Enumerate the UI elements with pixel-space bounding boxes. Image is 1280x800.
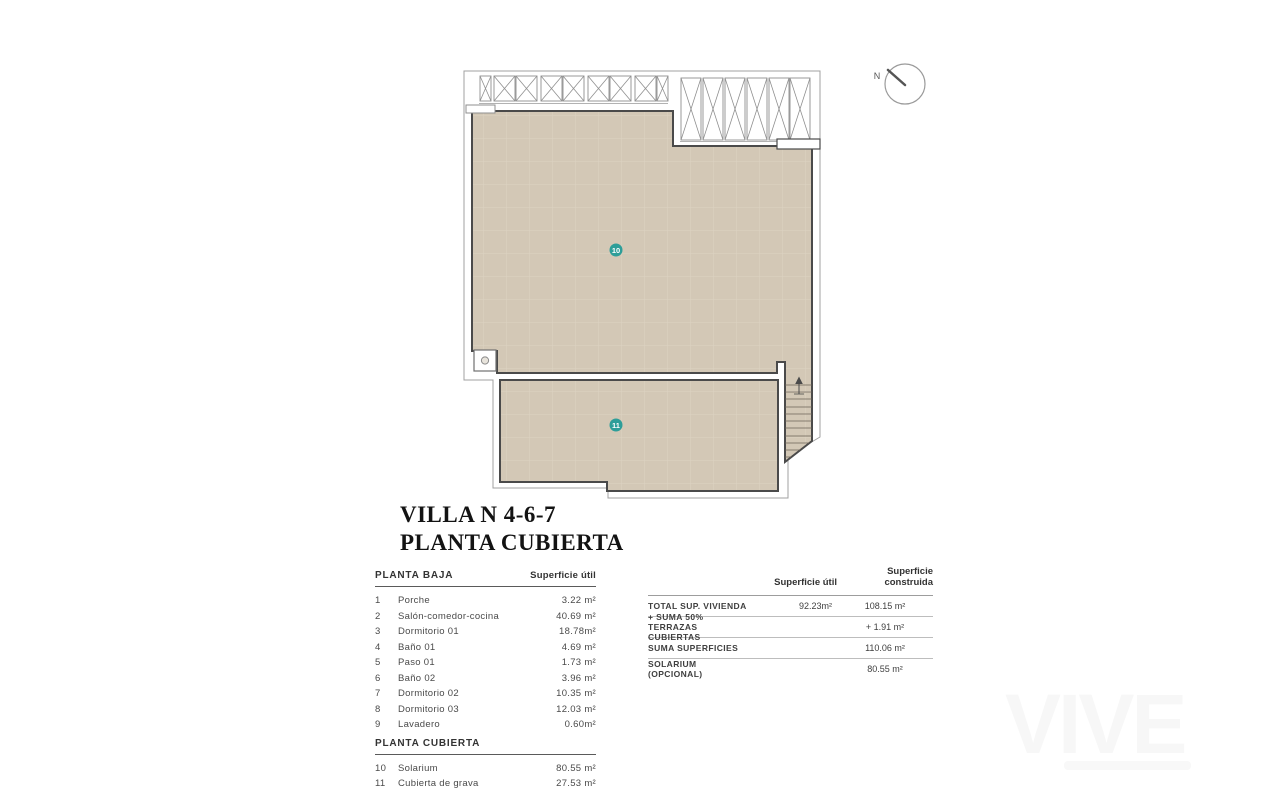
summary-col-superficie-construida: Superficie construida — [837, 566, 933, 588]
summary-col-superficie-util: Superficie útil — [749, 577, 837, 588]
table-row: 1Porche3.22 m² — [375, 593, 596, 609]
areas-table-header: PLANTA BAJA Superficie útil — [375, 570, 596, 587]
summary-row-solarium-opcional: SOLARIUM (OPCIONAL) 80.55 m² — [648, 658, 933, 679]
table-row: 4Baño 014.69 m² — [375, 640, 596, 656]
areas-rows-planta-baja: 1Porche3.22 m² 2Salón-comedor-cocina40.6… — [375, 593, 596, 733]
floor-plan-drawing: N 10 11 — [440, 40, 940, 520]
page-title-line2: PLANTA CUBIERTA — [400, 529, 624, 557]
table-row: 10Solarium80.55 m² — [375, 761, 596, 777]
compass-north-label: N — [874, 71, 881, 81]
table-row: 8Dormitorio 0312.03 m² — [375, 702, 596, 718]
areas-rows-planta-cubierta: 10Solarium80.55 m² 11Cubierta de grava27… — [375, 761, 596, 792]
watermark-tagline — [1064, 761, 1191, 770]
drain-icon — [481, 357, 488, 364]
table-row: 7Dormitorio 0210.35 m² — [375, 686, 596, 702]
summary-table: Superficie útil Superficie construida TO… — [648, 566, 933, 679]
pergola-band-left — [479, 76, 668, 104]
drain-box — [474, 350, 496, 371]
page-title-line1: VILLA N 4-6-7 — [400, 501, 624, 529]
room-badge-10-label: 10 — [612, 246, 620, 255]
north-compass: N — [874, 64, 925, 104]
table-row: 5Paso 011.73 m² — [375, 655, 596, 671]
table-row: 9Lavadero0.60m² — [375, 717, 596, 733]
room-badge-11: 11 — [610, 419, 623, 432]
page-title: VILLA N 4-6-7 PLANTA CUBIERTA — [400, 501, 624, 557]
table-row: 6Baño 023.96 m² — [375, 671, 596, 687]
pergola-band-right — [680, 78, 812, 142]
areas-table: PLANTA BAJA Superficie útil 1Porche3.22 … — [375, 570, 596, 792]
watermark-logo: VIVE — [1005, 682, 1235, 766]
wall-tab-top-left — [466, 105, 495, 113]
column-title-superficie-util: Superficie útil — [530, 570, 596, 581]
areas-table-header-cubierta: PLANTA CUBIERTA — [375, 738, 596, 755]
gravel-roof-floor — [500, 380, 778, 491]
room-badge-10: 10 — [610, 244, 623, 257]
wall-notch-top-right — [777, 139, 820, 149]
summary-row-terrazas-cubiertas: + SUMA 50% TERRAZAS CUBIERTAS + 1.91 m² — [648, 616, 933, 637]
table-row: 2Salón-comedor-cocina40.69 m² — [375, 609, 596, 625]
table-row: 11Cubierta de grava27.53 m² — [375, 776, 596, 792]
room-badge-11-label: 11 — [612, 421, 620, 430]
section-title-planta-cubierta: PLANTA CUBIERTA — [375, 738, 480, 749]
table-row: 3Dormitorio 0118.78m² — [375, 624, 596, 640]
section-title-planta-baja: PLANTA BAJA — [375, 570, 453, 581]
summary-table-header: Superficie útil Superficie construida — [648, 566, 933, 596]
